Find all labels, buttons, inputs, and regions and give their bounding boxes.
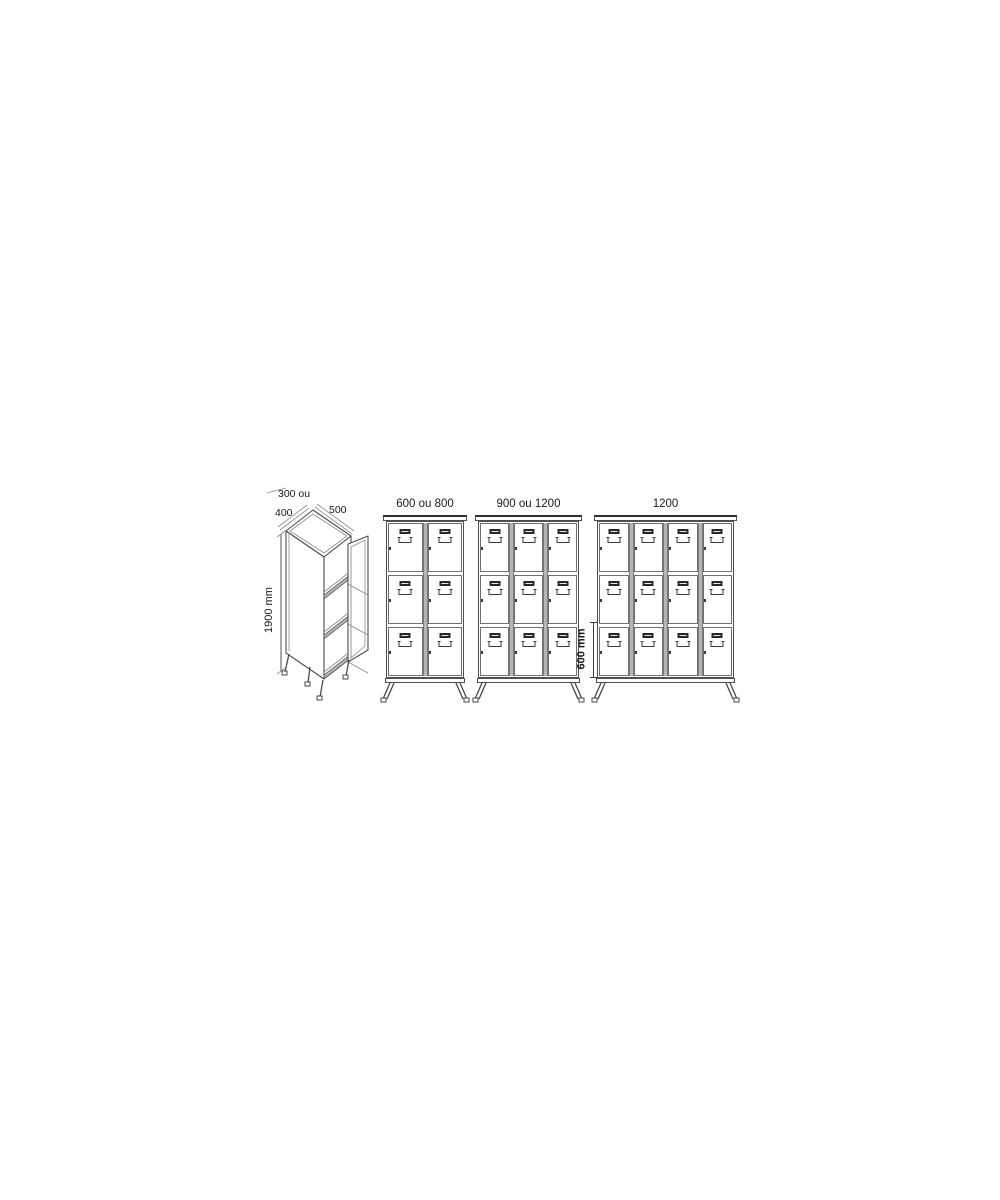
locker-door (514, 575, 543, 624)
door-label-holder (523, 633, 534, 638)
leg (479, 683, 486, 699)
locker-legs (478, 683, 579, 704)
leg (387, 683, 394, 699)
door-handle-icon (488, 641, 501, 647)
door-handle-icon (522, 641, 535, 647)
door-lock-icon (429, 599, 431, 602)
door-handle-icon (438, 537, 451, 543)
leg (456, 683, 463, 699)
door-label-holder (439, 529, 450, 534)
locker-door (514, 523, 543, 572)
leg (575, 683, 582, 699)
locker-legs-drawing (589, 683, 742, 704)
leg-foot (473, 698, 478, 702)
door-label-holder (489, 581, 500, 586)
door-lock-icon (429, 651, 431, 654)
open-door (348, 536, 368, 673)
door-label-holder (608, 633, 619, 638)
door-lock-icon (389, 651, 391, 654)
door-lock-icon (635, 547, 637, 550)
door-label-holder (608, 529, 619, 534)
isometric-locker-drawing: 300 ou 400 500 1900 mm (262, 483, 374, 703)
door-label-holder (712, 529, 723, 534)
depth-label: 500 (329, 504, 347, 516)
locker-column (428, 523, 463, 676)
leg-foot (579, 698, 584, 702)
door-label-holder (400, 581, 411, 586)
locker-door (634, 523, 664, 572)
door-label-holder (643, 529, 654, 534)
door-label-holder (643, 633, 654, 638)
locker-door (668, 575, 698, 624)
cabinet-interior-shelves (324, 536, 351, 679)
door-label-holder (400, 633, 411, 638)
door-lock-icon (669, 599, 671, 602)
leg (571, 683, 578, 699)
door-lock-icon (635, 599, 637, 602)
width-option-label-line1: 300 ou (278, 488, 310, 500)
door-label-holder (400, 529, 411, 534)
door-handle-icon (607, 589, 620, 595)
locker-front-view-3col: 900 ou 1200 (478, 498, 579, 704)
locker-door (428, 523, 463, 572)
locker-door (668, 627, 698, 676)
locker-door (480, 627, 509, 676)
locker-door (480, 523, 509, 572)
door-lock-icon (429, 547, 431, 550)
locker-door (388, 627, 423, 676)
locker-legs-drawing (470, 683, 587, 704)
dimension-line (593, 622, 595, 678)
locker-door (388, 575, 423, 624)
locker-door (703, 627, 733, 676)
locker-door (548, 575, 577, 624)
door-label-holder (439, 633, 450, 638)
locker-body (386, 521, 464, 678)
leg (594, 683, 601, 699)
compartment-height-dimension: 600 mm (573, 619, 594, 679)
locker-column (514, 523, 543, 676)
door-lock-icon (549, 651, 551, 654)
locker-column (634, 523, 664, 676)
door-handle-icon (642, 589, 655, 595)
locker-column (703, 523, 733, 676)
door-label-holder (712, 633, 723, 638)
door-label-holder (677, 529, 688, 534)
locker-door (599, 523, 629, 572)
locker-door (514, 627, 543, 676)
height-label: 1900 mm (263, 587, 275, 633)
door-lock-icon (515, 547, 517, 550)
door-label-holder (677, 581, 688, 586)
door-lock-icon (549, 599, 551, 602)
door-handle-icon (642, 537, 655, 543)
door-handle-icon (556, 641, 569, 647)
door-handle-icon (556, 537, 569, 543)
locker-door (388, 523, 423, 572)
door-handle-icon (438, 641, 451, 647)
door-handle-icon (488, 589, 501, 595)
cabinet-side-panel (286, 531, 324, 679)
leg-foot (381, 698, 386, 702)
door-label-holder (489, 633, 500, 638)
leg-foot (464, 698, 469, 702)
locker-door (428, 627, 463, 676)
leg-foot (734, 698, 739, 702)
locker-column (388, 523, 423, 676)
door-lock-icon (669, 547, 671, 550)
leg (598, 683, 605, 699)
door-handle-icon (711, 589, 724, 595)
door-lock-icon (389, 547, 391, 550)
locker-column (668, 523, 698, 676)
door-lock-icon (600, 547, 602, 550)
door-label-holder (439, 581, 450, 586)
locker-body (478, 521, 579, 678)
door-handle-icon (399, 589, 412, 595)
leg-foot (592, 698, 597, 702)
door-lock-icon (704, 599, 706, 602)
height-dimension-line (277, 531, 285, 674)
locker-door (548, 523, 577, 572)
door-handle-icon (522, 537, 535, 543)
door-lock-icon (600, 599, 602, 602)
locker-column (599, 523, 629, 676)
door-lock-icon (481, 651, 483, 654)
door-lock-icon (481, 547, 483, 550)
locker-door (599, 627, 629, 676)
door-handle-icon (676, 641, 689, 647)
door-label-holder (677, 633, 688, 638)
leg (475, 683, 482, 699)
door-label-holder (643, 581, 654, 586)
door-handle-icon (399, 537, 412, 543)
locker-door (703, 523, 733, 572)
locker-door (428, 575, 463, 624)
door-lock-icon (549, 547, 551, 550)
locker-legs (386, 683, 464, 704)
door-label-holder (523, 581, 534, 586)
door-lock-icon (515, 651, 517, 654)
leg (726, 683, 733, 699)
door-handle-icon (607, 537, 620, 543)
door-lock-icon (481, 599, 483, 602)
door-handle-icon (676, 589, 689, 595)
door-handle-icon (711, 641, 724, 647)
locker-width-label: 900 ou 1200 (478, 498, 579, 511)
locker-front-view-2col: 600 ou 800 (386, 498, 464, 704)
door-lock-icon (704, 547, 706, 550)
locker-dimensions-diagram: 300 ou 400 500 1900 mm 600 ou 800 900 ou… (0, 0, 1000, 1200)
locker-width-label: 1200 (597, 498, 734, 511)
locker-door (634, 627, 664, 676)
locker-door (599, 575, 629, 624)
width-option-label-line2: 400 (275, 507, 293, 519)
door-label-holder (712, 581, 723, 586)
leg (460, 683, 467, 699)
leg (383, 683, 390, 699)
leg (730, 683, 737, 699)
locker-width-label: 600 ou 800 (386, 498, 464, 511)
door-lock-icon (389, 599, 391, 602)
locker-front-view-4col: 1200 (597, 498, 734, 704)
door-label-holder (557, 581, 568, 586)
door-label-holder (608, 581, 619, 586)
locker-door (703, 575, 733, 624)
locker-door (634, 575, 664, 624)
door-label-holder (557, 633, 568, 638)
door-lock-icon (600, 651, 602, 654)
door-label-holder (523, 529, 534, 534)
door-handle-icon (642, 641, 655, 647)
compartment-height-label: 600 mm (575, 629, 587, 670)
door-handle-icon (438, 589, 451, 595)
door-handle-icon (711, 537, 724, 543)
door-handle-icon (676, 537, 689, 543)
locker-legs-drawing (378, 683, 472, 704)
locker-legs (597, 683, 734, 704)
door-handle-icon (607, 641, 620, 647)
door-label-holder (489, 529, 500, 534)
locker-column (480, 523, 509, 676)
door-lock-icon (635, 651, 637, 654)
door-handle-icon (399, 641, 412, 647)
locker-door (668, 523, 698, 572)
door-label-holder (557, 529, 568, 534)
door-handle-icon (522, 589, 535, 595)
door-handle-icon (556, 589, 569, 595)
door-lock-icon (515, 599, 517, 602)
door-lock-icon (669, 651, 671, 654)
door-lock-icon (704, 651, 706, 654)
locker-body (597, 521, 734, 678)
locker-door (480, 575, 509, 624)
door-handle-icon (488, 537, 501, 543)
